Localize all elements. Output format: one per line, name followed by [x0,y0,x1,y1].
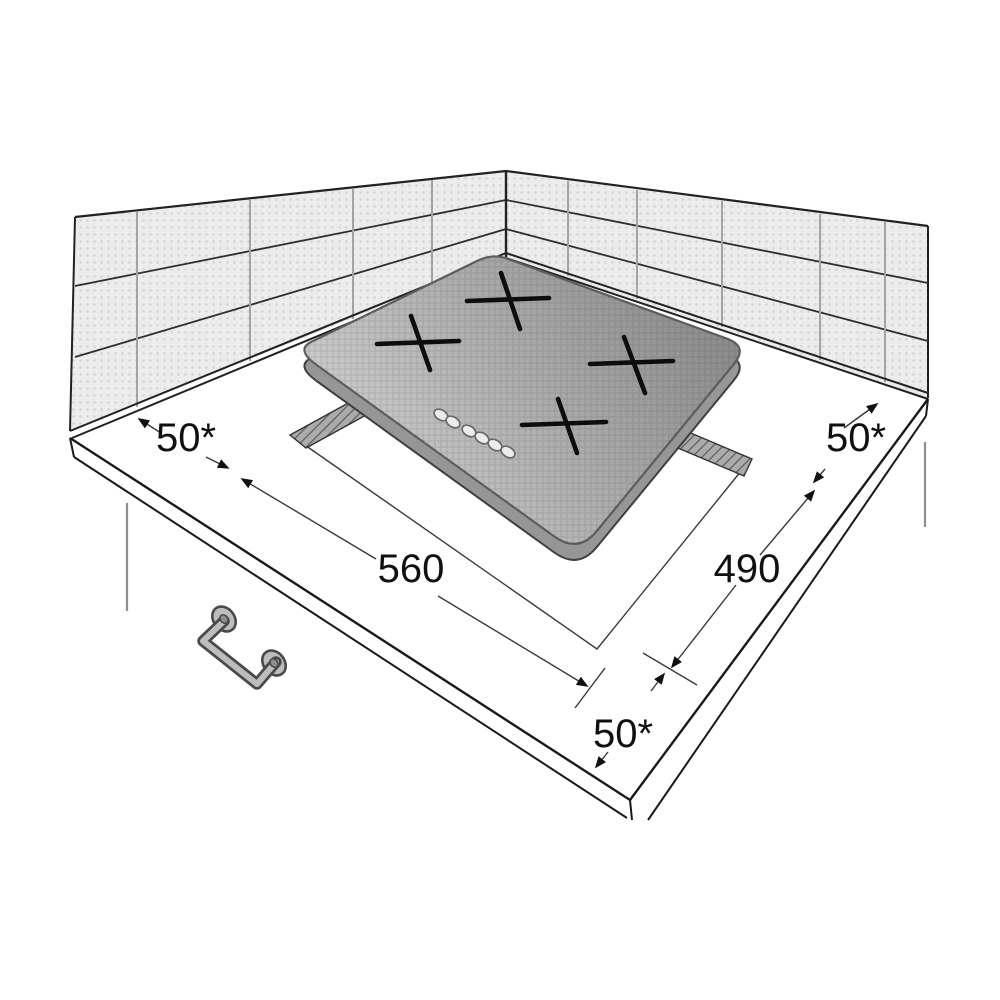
dimension-label: 490 [714,547,781,591]
dimension-label: 50* [156,416,216,460]
diagram-canvas: 50* 50* 560 490 50* [0,0,1000,1000]
dimension-label: 50* [826,416,886,460]
hob-installation-diagram: 50* 50* 560 490 50* [0,0,1000,1000]
counter-front-corner [630,800,632,820]
dimension-label: 560 [378,547,445,591]
dimension-label: 50* [593,712,653,756]
cabinet-handle [203,602,291,684]
